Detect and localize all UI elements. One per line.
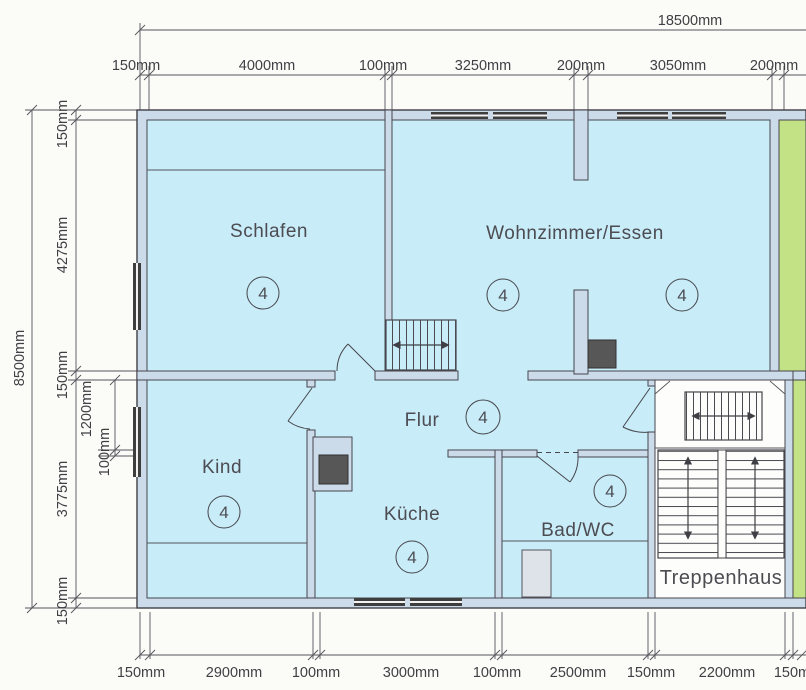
room-label-kind: Kind xyxy=(202,457,242,478)
dim-label-overall-height: 8500mm xyxy=(12,330,28,386)
dim-label: 150mm xyxy=(117,665,165,681)
dim-label: 100mm xyxy=(473,665,521,681)
window-icon xyxy=(493,112,547,119)
window-icon xyxy=(431,112,488,119)
window-icon xyxy=(617,112,668,119)
dim-label-overall-width: 18500mm xyxy=(658,13,722,29)
dim-label: 150mm xyxy=(55,351,71,399)
wall-stairwell-west-lower xyxy=(648,432,655,598)
main-stair-flight-right xyxy=(726,450,784,558)
svg-text:4: 4 xyxy=(605,482,614,501)
window-icon xyxy=(354,598,405,606)
dim-label: 1200mm xyxy=(79,381,95,437)
dim-label: 3775mm xyxy=(55,461,71,517)
dim-label: 150mm xyxy=(112,58,160,74)
svg-text:4: 4 xyxy=(677,286,686,305)
small-stair xyxy=(386,320,456,370)
wall-under-stair xyxy=(375,371,458,380)
wall-kind-flur-top xyxy=(307,380,315,387)
room-label-kueche: Küche xyxy=(384,504,440,525)
dim-label: 2900mm xyxy=(206,665,262,681)
window-icon xyxy=(410,598,462,606)
dim-label: 3000mm xyxy=(383,665,439,681)
window-icon xyxy=(133,263,141,330)
scanned-floor-plan-page: 18500mm 150mm 4000mm 100mm 3250mm 200mm … xyxy=(0,0,806,690)
main-stair-flight-left xyxy=(658,450,718,558)
dim-label: 2500mm xyxy=(550,665,606,681)
neighbor-room-lower xyxy=(793,380,806,598)
room-label-flur: Flur xyxy=(405,410,440,431)
stair-stringer xyxy=(718,450,726,558)
svg-text:4: 4 xyxy=(498,286,507,305)
wall-flur-bad xyxy=(578,450,648,457)
wall-kueche-bad xyxy=(495,450,502,598)
room-label-schlafen: Schlafen xyxy=(230,221,308,242)
dim-label: 200mm xyxy=(750,58,798,74)
svg-text:4: 4 xyxy=(258,284,267,303)
dim-label: 150mm xyxy=(627,665,675,681)
room-label-bad: Bad/WC xyxy=(541,520,615,541)
dim-label: 4000mm xyxy=(239,58,295,74)
room-label-treppenhaus: Treppenhaus xyxy=(660,567,783,589)
dim-label: 3250mm xyxy=(455,58,511,74)
dim-bottom-chain: 150mm 2900mm 100mm 3000mm 100mm 2500mm 1… xyxy=(117,612,806,681)
building-plan: Schlafen Wohnzimmer/Essen Kind Flur Küch… xyxy=(133,110,806,608)
window-icon xyxy=(672,112,726,119)
dim-left-overall: 8500mm xyxy=(12,105,137,613)
dim-label: 150mm xyxy=(774,665,806,681)
wall-stub-top xyxy=(574,110,588,180)
svg-text:4: 4 xyxy=(407,548,416,567)
dim-label: 4275mm xyxy=(55,217,71,273)
wall-wohnzimmer-bottom xyxy=(528,371,793,380)
floor-plan-svg: 18500mm 150mm 4000mm 100mm 3250mm 200mm … xyxy=(0,0,806,690)
room-label-wohnzimmer: Wohnzimmer/Essen xyxy=(486,223,664,244)
wall-schlafen-bottom-left xyxy=(137,371,335,380)
chimney-block-wohnzimmer xyxy=(588,340,616,368)
dim-label: 2200mm xyxy=(699,665,755,681)
dim-left-subchain: 1200mm 100mm xyxy=(79,375,137,476)
dim-label: 200mm xyxy=(557,58,605,74)
neighbor-room-upper xyxy=(779,120,806,371)
dim-label: 100mm xyxy=(97,428,113,476)
wall-flur-kueche xyxy=(448,450,537,457)
svg-text:4: 4 xyxy=(219,503,228,522)
bathtub xyxy=(522,550,551,597)
dim-left-chain: 150mm 4275mm 150mm 3775mm 150mm xyxy=(55,100,137,625)
upper-stair-flight xyxy=(685,392,762,440)
wall-stub-chimney xyxy=(574,290,588,374)
dim-label: 100mm xyxy=(359,58,407,74)
chimney-block-kueche xyxy=(319,455,348,484)
dim-label: 100mm xyxy=(292,665,340,681)
dim-label: 150mm xyxy=(55,100,71,148)
dim-label: 3050mm xyxy=(650,58,706,74)
window-icon xyxy=(133,407,141,477)
svg-text:4: 4 xyxy=(478,408,487,427)
dim-top-chain: 150mm 4000mm 100mm 3250mm 200mm 3050mm 2… xyxy=(112,58,806,111)
wall-stairwell-west-upper xyxy=(648,380,655,386)
wall-stairwell-east xyxy=(785,380,793,598)
dim-label: 150mm xyxy=(55,577,71,625)
